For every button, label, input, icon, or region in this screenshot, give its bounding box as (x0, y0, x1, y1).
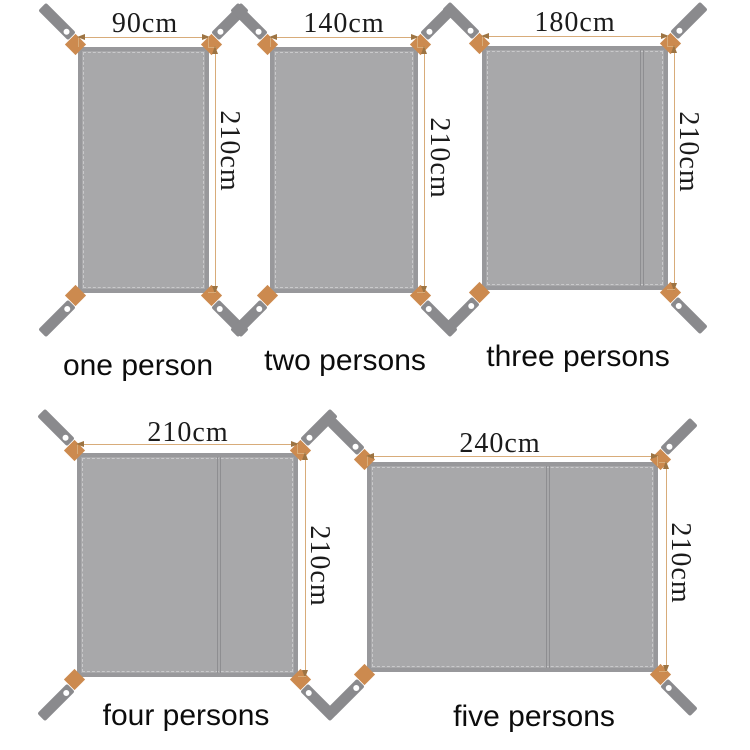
grommet-icon (425, 27, 433, 35)
grommet-icon (305, 433, 313, 441)
arrow-right-icon (651, 453, 659, 459)
width-dimension-label: 210cm (147, 417, 228, 449)
grommet-icon (216, 27, 224, 35)
arrow-left-icon (269, 34, 277, 40)
seam-line (217, 457, 221, 673)
arrow-down-icon (671, 283, 677, 291)
arrow-left-icon (366, 453, 374, 459)
tarp-fabric (482, 46, 668, 290)
corner-strap-icon (327, 418, 364, 455)
grommet-icon (665, 442, 673, 450)
grommet-icon (62, 688, 70, 696)
arrow-right-icon (202, 34, 210, 40)
arrow-down-icon (421, 286, 427, 294)
grommet-icon (62, 433, 70, 441)
arrow-right-icon (291, 441, 299, 447)
arrow-up-icon (421, 46, 427, 54)
grommet-icon (425, 304, 433, 312)
width-dimension-label: 140cm (303, 8, 384, 40)
arrow-down-icon (212, 286, 218, 294)
grommet-icon (467, 301, 475, 309)
person-label: four persons (103, 699, 270, 733)
corner-strap-icon (37, 684, 74, 721)
seam-line (546, 466, 550, 668)
arrow-up-icon (671, 45, 677, 53)
corner-strap-icon (660, 679, 697, 716)
grommet-icon (467, 26, 475, 34)
height-dimension-label: 210cm (664, 522, 696, 603)
height-dimension-label: 210cm (303, 525, 335, 606)
arrow-down-icon (663, 665, 669, 673)
arrow-left-icon (77, 34, 85, 40)
corner-strap-icon (670, 2, 707, 39)
seam-line (640, 50, 644, 286)
tarp-group-four-persons (77, 453, 298, 677)
tarp-group-two-persons (270, 47, 418, 293)
tarp-group-one-person (78, 47, 209, 293)
arrow-up-icon (663, 461, 669, 469)
tarp-fabric (270, 47, 418, 293)
tarp-group-five-persons (367, 462, 658, 672)
corner-strap-icon (660, 418, 697, 455)
grommet-icon (352, 683, 360, 691)
height-dimension-label: 210cm (423, 117, 455, 198)
height-dimension-label: 210cm (672, 111, 704, 192)
width-dimension-label: 240cm (459, 428, 540, 460)
tarp-fabric (367, 462, 658, 672)
person-label: three persons (486, 340, 669, 374)
grommet-icon (63, 304, 71, 312)
grommet-icon (255, 304, 263, 312)
corner-strap-icon (37, 409, 74, 446)
corner-strap-icon (327, 679, 364, 716)
width-dimension-label: 90cm (112, 8, 178, 40)
person-label: one person (63, 349, 213, 383)
corner-strap-icon (38, 3, 75, 40)
corner-strap-icon (442, 297, 479, 334)
corner-strap-icon (442, 2, 479, 39)
tarp-group-three-persons (482, 46, 668, 290)
arrow-up-icon (302, 452, 308, 460)
grommet-icon (305, 688, 313, 696)
arrow-left-icon (481, 33, 489, 39)
person-label: two persons (264, 344, 426, 378)
grommet-icon (675, 301, 683, 309)
size-diagram: { "colors": { "bg": "#ffffff", "tarp": "… (0, 0, 750, 750)
corner-strap-icon (670, 297, 707, 334)
grommet-icon (63, 27, 71, 35)
arrow-up-icon (212, 46, 218, 54)
arrow-right-icon (661, 33, 669, 39)
grommet-icon (665, 683, 673, 691)
tarp-fabric (78, 47, 209, 293)
arrow-left-icon (76, 441, 84, 447)
person-label: five persons (453, 700, 615, 734)
tarp-fabric (77, 453, 298, 677)
arrow-right-icon (411, 34, 419, 40)
corner-strap-icon (38, 300, 75, 337)
grommet-icon (675, 26, 683, 34)
height-dimension-label: 210cm (213, 110, 245, 191)
width-dimension-label: 180cm (534, 7, 615, 39)
arrow-down-icon (302, 670, 308, 678)
grommet-icon (352, 442, 360, 450)
grommet-icon (255, 27, 263, 35)
grommet-icon (216, 304, 224, 312)
